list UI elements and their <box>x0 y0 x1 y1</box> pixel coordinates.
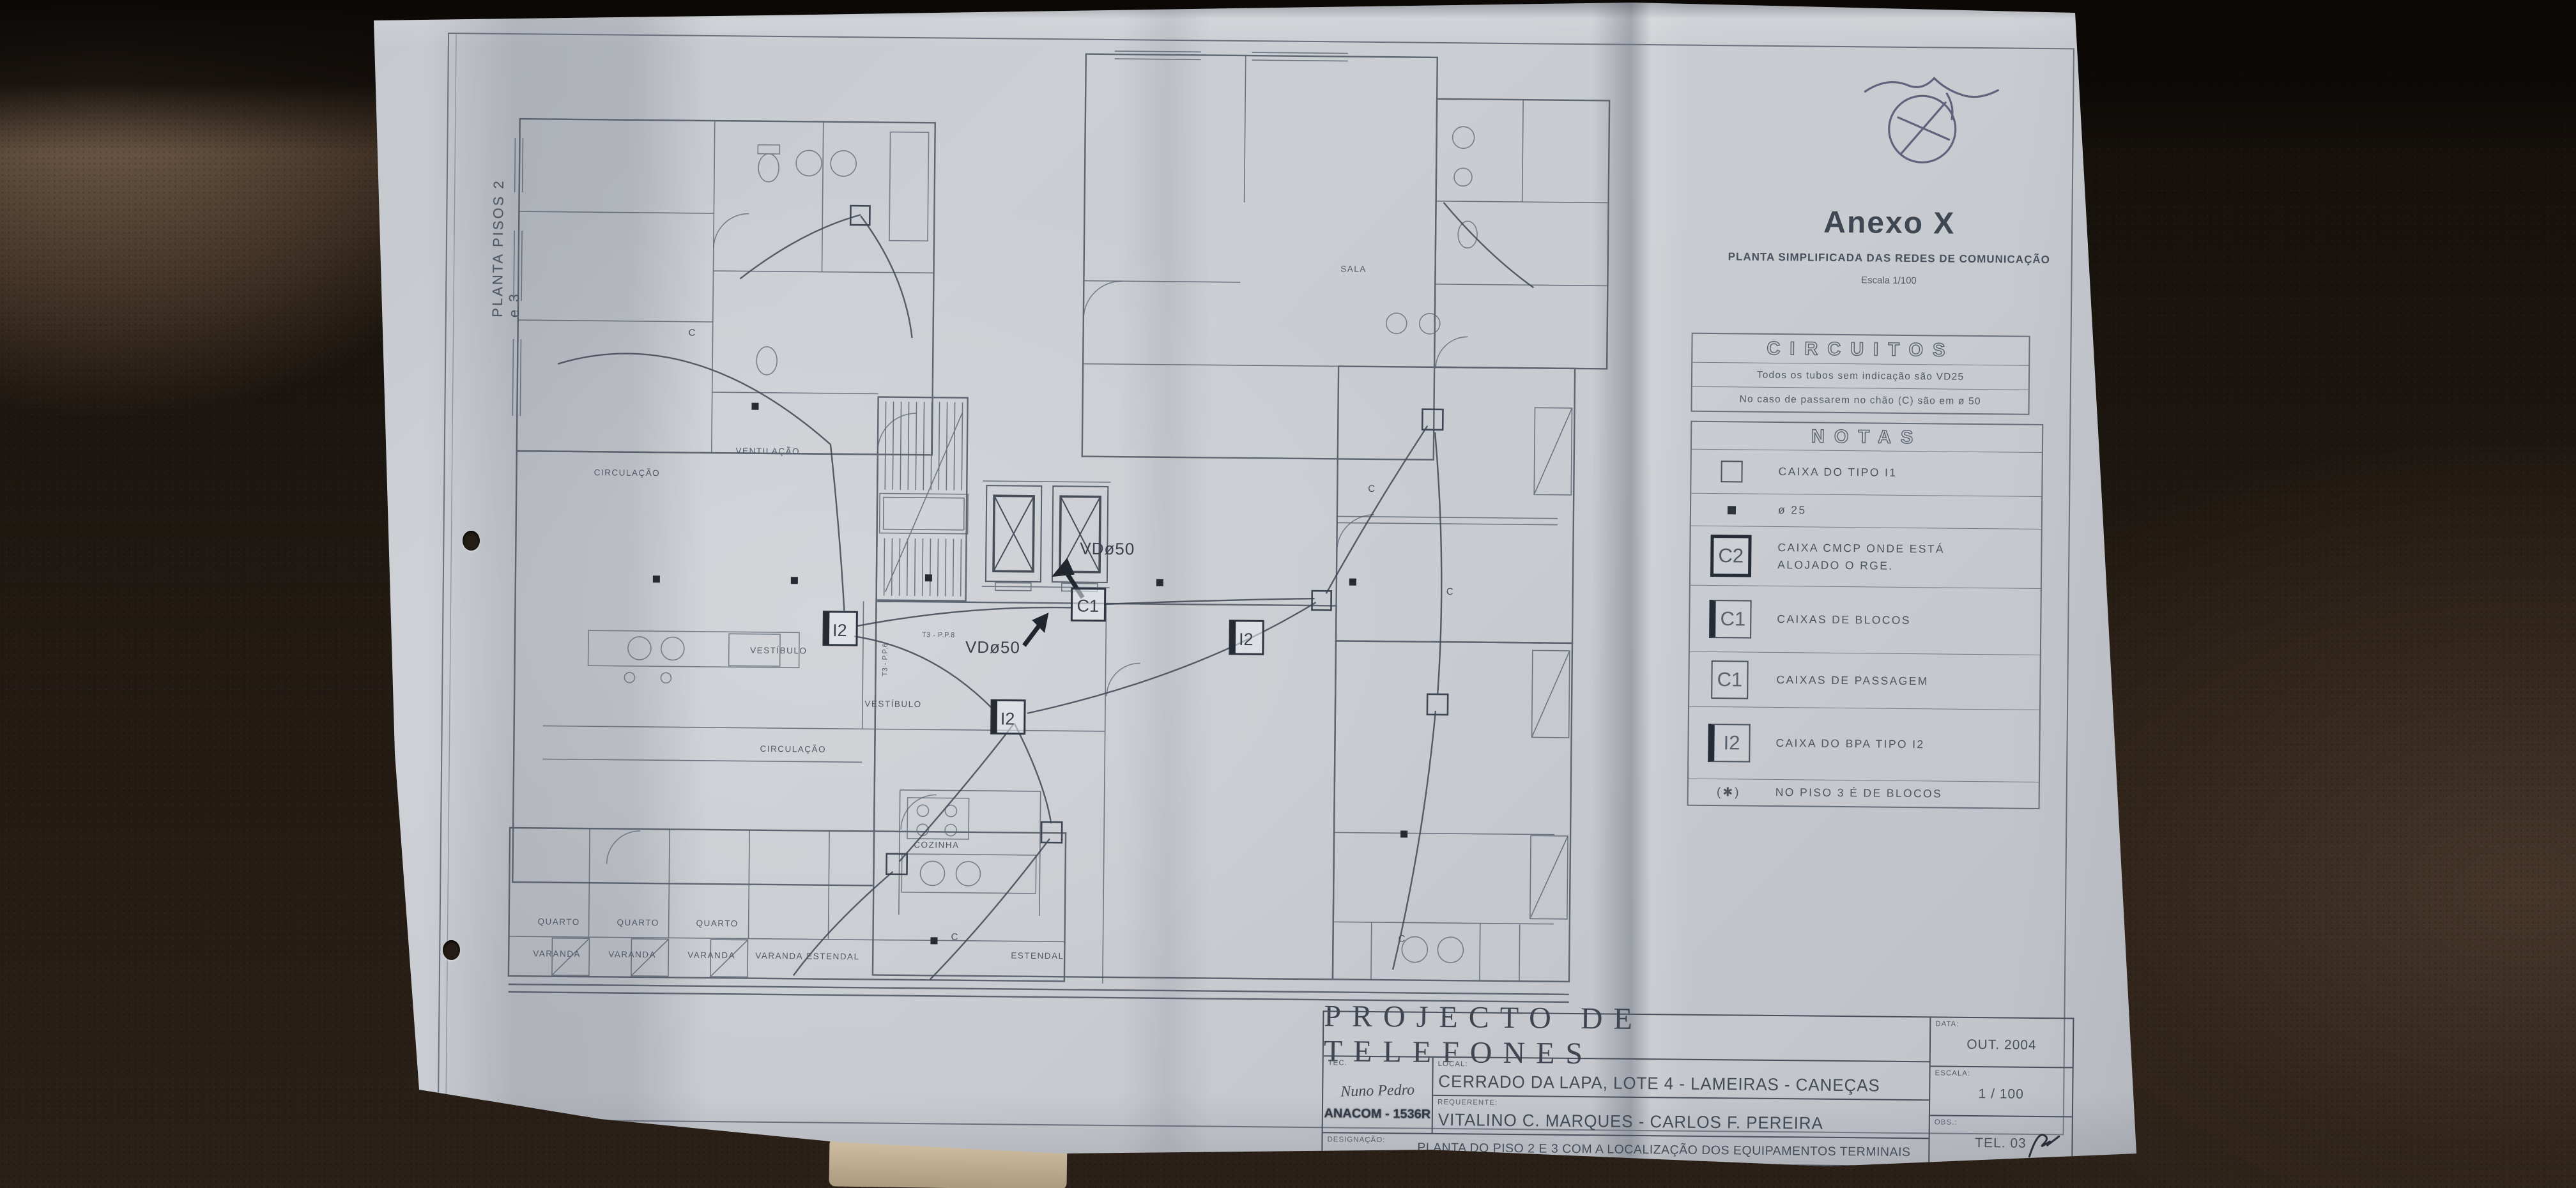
legend-label: CAIXA DO TIPO I1 <box>1778 463 1897 482</box>
room-label: QUARTO <box>617 918 659 928</box>
vd50-label: VDø50 <box>1080 539 1135 559</box>
legend-row: C1 CAIXAS DE PASSAGEM <box>1689 651 2040 710</box>
i2-box-label: I2 <box>832 621 847 640</box>
tube-25-symbol <box>1727 506 1735 514</box>
ink-stamp <box>1826 52 2032 194</box>
asterisk-symbol: (✱) <box>1705 784 1752 800</box>
cable-c-marker: C <box>689 328 696 339</box>
punch-hole <box>443 940 460 960</box>
technician-cell: TEC. Nuno Pedro ANACOM - 1536R <box>1323 1056 1434 1134</box>
room-label: VARANDA <box>755 951 803 961</box>
room-label: VENTILAÇÃO <box>735 446 800 456</box>
box-type-i1-symbol <box>1721 461 1742 482</box>
legend-row: I2 CAIXA DO BPA TIPO I2 <box>1689 706 2039 782</box>
legend-row: ø 25 <box>1691 493 2041 529</box>
circuitos-panel: CIRCUITOS Todos os tubos sem indicação s… <box>1690 333 2030 415</box>
location-label: LOCAL: <box>1438 1060 1468 1068</box>
annex-title: Anexo X <box>1685 204 2094 243</box>
obs-label: OBS.: <box>1935 1118 1958 1126</box>
legend-label: NO PISO 3 É DE BLOCOS <box>1775 784 1943 803</box>
room-label: QUARTO <box>696 918 739 929</box>
i2-box-label: I2 <box>1239 630 1253 649</box>
legend-row: C2 CAIXA CMCP ONDE ESTÁ ALOJADO O RGE. <box>1690 526 2041 588</box>
door-arcs <box>607 213 1469 872</box>
scale-label: ESCALA: <box>1935 1069 1970 1078</box>
room-label: CIRCULAÇÃO <box>594 468 661 478</box>
project-title: PROJECTO DE TELEFONES <box>1324 1012 1931 1062</box>
cable-c-marker: C <box>1398 933 1405 944</box>
notas-panel: NOTAS CAIXA DO TIPO I1 ø 25 C2 CAIXA CMC… <box>1687 421 2044 809</box>
legend-row: C1 CAIXAS DE BLOCOS <box>1690 585 2041 655</box>
i1-boxes <box>649 402 1411 948</box>
legend-label: CAIXAS DE PASSAGEM <box>1776 671 1929 690</box>
riser-label: T3 - P.P.8 <box>922 631 955 639</box>
room-label: VESTÍBULO <box>750 646 807 656</box>
riser-label: T3 - P.P.6 <box>881 643 889 676</box>
legend-footnote-row: (✱) NO PISO 3 É DE BLOCOS <box>1689 779 2039 808</box>
room-label: VARANDA <box>608 949 656 959</box>
technician-label: TEC. <box>1328 1059 1347 1067</box>
legend-label: CAIXAS DE BLOCOS <box>1777 611 1911 629</box>
scale-cell: ESCALA: 1 / 100 <box>1930 1067 2073 1117</box>
room-label: VARANDA <box>687 950 735 961</box>
c1-blocks-box-symbol: C1 <box>1709 600 1752 639</box>
elevators <box>986 485 1108 583</box>
annex-subtitle: PLANTA SIMPLIFICADA DAS REDES DE COMUNIC… <box>1685 250 2094 267</box>
legend-label: CAIXA DO BPA TIPO I2 <box>1775 735 1924 753</box>
punch-hole <box>463 531 480 551</box>
requester-cell: REQUERENTE: VITALINO C. MARQUES - CARLOS… <box>1433 1096 1931 1139</box>
legend-row: CAIXA DO TIPO I1 <box>1691 449 2042 496</box>
title-block: PROJECTO DE TELEFONES DATA: OUT. 2004 ES… <box>1321 1010 2074 1168</box>
circuitos-note: Todos os tubos sem indicação são VD25 <box>1692 362 2028 390</box>
date-cell: DATA: OUT. 2004 <box>1931 1017 2073 1068</box>
cable-c-marker: C <box>1446 586 1453 597</box>
technician-org: ANACOM - 1536R <box>1323 1106 1432 1122</box>
room-label: ESTENDAL <box>806 951 859 961</box>
location-cell: LOCAL: CERRADO DA LAPA, LOTE 4 - LAMEIRA… <box>1433 1058 1931 1100</box>
c1-passage-box-symbol: C1 <box>1711 660 1749 699</box>
cable-runs <box>552 194 1535 986</box>
scale-value: 1 / 100 <box>1930 1086 2072 1102</box>
room-label: VARANDA <box>533 948 581 959</box>
cable-c-marker: C <box>951 932 958 943</box>
photo-of-telephone-project-blueprint: I2 I2 I2 C1 VDø50 VDø50 C C C C C VESTÍB… <box>0 0 2576 1188</box>
date-value: OUT. 2004 <box>1931 1037 2073 1053</box>
c1-box-label: C1 <box>1077 597 1099 616</box>
notas-header: NOTAS <box>1692 422 2042 452</box>
circuitos-header: CIRCUITOS <box>1692 334 2028 365</box>
vd50-label: VDø50 <box>965 637 1020 657</box>
cable-c-marker: C <box>1368 484 1375 494</box>
signature-icon <box>2018 1126 2063 1162</box>
legend-label: CAIXA CMCP ONDE ESTÁ ALOJADO O RGE. <box>1777 539 1976 575</box>
legend-label: ø 25 <box>1778 501 1807 519</box>
side-plan-label: PLANTA PISOS 2 e 3 <box>489 164 524 317</box>
fixtures <box>585 118 1478 963</box>
room-label: VESTÍBULO <box>864 699 921 709</box>
technician-name: Nuno Pedro <box>1323 1081 1432 1101</box>
location-value: CERRADO DA LAPA, LOTE 4 - LAMEIRAS - CAN… <box>1438 1072 1910 1096</box>
c2-box-symbol: C2 <box>1710 535 1752 577</box>
requester-label: REQUERENTE: <box>1437 1099 1498 1107</box>
i2-box-label: I2 <box>1000 709 1015 728</box>
i2-box-symbol: I2 <box>1708 724 1751 763</box>
room-label: QUARTO <box>538 917 580 927</box>
internal-walls <box>507 45 1610 988</box>
room-label: CIRCULAÇÃO <box>760 744 827 754</box>
circuitos-note: No caso de passarem no chão (C) são em ø… <box>1692 386 2028 414</box>
room-label: ESTENDAL <box>1011 951 1064 961</box>
room-label: SALA <box>1340 264 1367 273</box>
annex-heading: Anexo X PLANTA SIMPLIFICADA DAS REDES DE… <box>1684 204 2094 288</box>
room-label: COZINHA <box>914 840 959 850</box>
outer-walls <box>509 49 1610 1002</box>
designation-label: DESIGNAÇÃO: <box>1327 1136 1385 1144</box>
requester-value: VITALINO C. MARQUES - CARLOS F. PEREIRA <box>1438 1110 1910 1134</box>
junction-boxes <box>844 206 1452 880</box>
date-label: DATA: <box>1935 1020 1959 1028</box>
